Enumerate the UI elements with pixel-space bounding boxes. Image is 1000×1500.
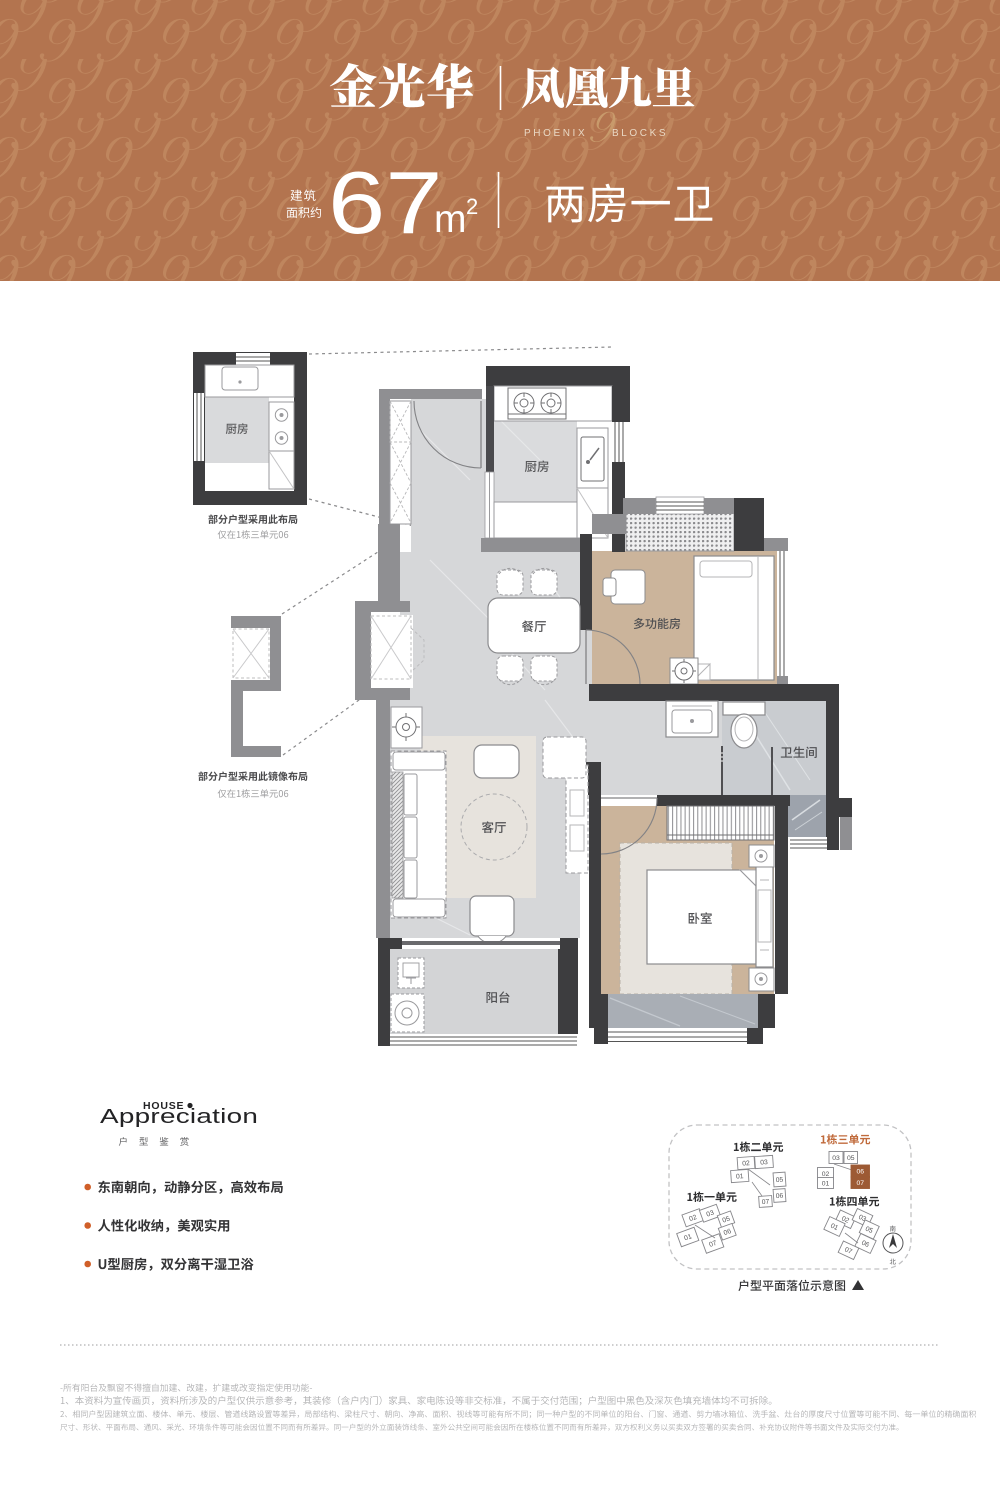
svg-text:07: 07 (762, 1199, 770, 1207)
svg-text:BLOCKS: BLOCKS (612, 128, 668, 139)
svg-text:02: 02 (822, 1171, 830, 1178)
svg-text:05: 05 (847, 1155, 855, 1162)
svg-text:02: 02 (742, 1160, 750, 1168)
svg-text:PHOENIX: PHOENIX (524, 128, 587, 139)
svg-text:67: 67 (328, 154, 443, 252)
svg-text:06: 06 (776, 1193, 784, 1201)
svg-text:2: 2 (466, 194, 478, 219)
svg-text:03: 03 (832, 1155, 840, 1162)
svg-text:01: 01 (822, 1180, 830, 1187)
svg-text:05: 05 (776, 1177, 784, 1185)
svg-text:06: 06 (856, 1169, 864, 1176)
svg-text:01: 01 (736, 1173, 744, 1181)
svg-text:03: 03 (760, 1159, 768, 1167)
svg-text:Appreciation: Appreciation (100, 1105, 258, 1128)
svg-text:m: m (434, 198, 467, 241)
svg-text:07: 07 (856, 1180, 864, 1187)
